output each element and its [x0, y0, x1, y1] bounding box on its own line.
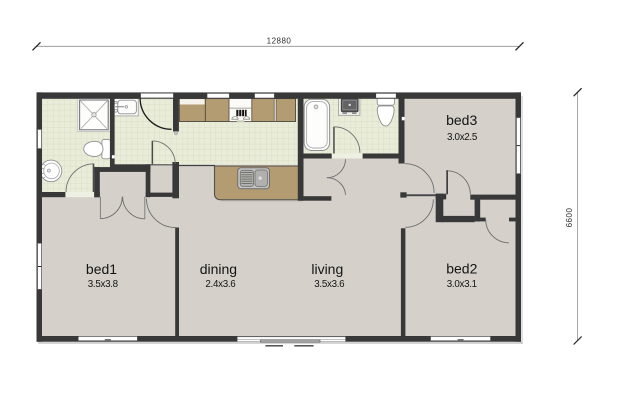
- svg-text:living: living: [311, 261, 343, 277]
- svg-text:bed2: bed2: [446, 260, 477, 276]
- svg-text:bed1: bed1: [86, 261, 117, 277]
- svg-text:3.0x2.5: 3.0x2.5: [447, 132, 478, 143]
- svg-text:dining: dining: [200, 261, 237, 277]
- svg-text:bed3: bed3: [446, 112, 477, 128]
- svg-text:6600: 6600: [565, 208, 574, 228]
- svg-text:3.5x3.8: 3.5x3.8: [88, 279, 119, 290]
- svg-text:2.4x3.6: 2.4x3.6: [205, 279, 236, 290]
- svg-text:3.5x3.6: 3.5x3.6: [314, 279, 345, 290]
- svg-text:3.0x3.1: 3.0x3.1: [447, 279, 477, 290]
- svg-text:12880: 12880: [267, 37, 292, 46]
